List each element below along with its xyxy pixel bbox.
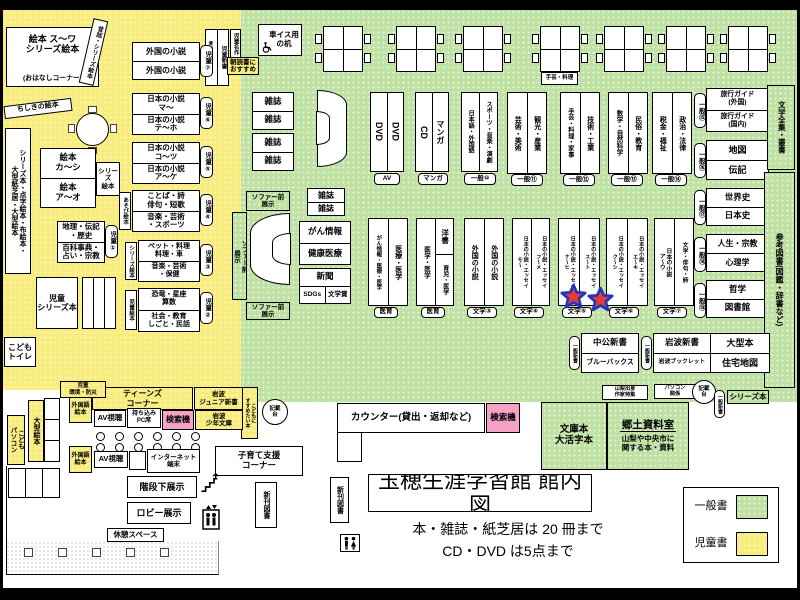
rest-space-seat <box>24 548 33 557</box>
magazine-label: 雑誌 <box>253 93 293 111</box>
newspaper-rack: 新聞 SDGs 文学賞 <box>299 268 351 304</box>
asadoku-recommend-box: 朝読書に おすすめ <box>227 57 259 75</box>
japanese-novels-ko-tsu: 日本の小説 コ〜ツ <box>133 143 199 163</box>
tag-av: AV <box>374 173 400 185</box>
legend-general-swatch <box>736 495 768 519</box>
reading-table <box>720 26 776 72</box>
sdgs-label: SDGs <box>300 287 325 304</box>
medicine-shelf: 医学・医学 <box>417 219 435 305</box>
bluebacks: ブルーバックス <box>582 353 638 373</box>
iwanami-shinsho: 岩波新書 <box>654 334 710 353</box>
large-books: 大型本 <box>711 334 769 353</box>
craft-cooking-note: 手芸・料理 <box>541 72 578 85</box>
rest-space-seat <box>160 548 169 557</box>
jnovels-essay-e-ki: 日本の小説・エッセイ エ〜キ <box>627 219 648 305</box>
children-toilet: こども トイレ <box>4 337 36 367</box>
geography-biography-history: 地理・伝記 ・歴史 <box>58 222 104 242</box>
paperback-largeprint-box: 文庫本 大活字本 <box>541 402 607 470</box>
wheelchair-desk-label: 車イス用 の机 <box>269 31 299 48</box>
tag-ippan-shinsho: 一般新書 <box>569 336 580 370</box>
shelf-medical-1: がん情報・医療・医学 医療・医学 <box>368 218 408 306</box>
iwanami-shonen-bunko: 岩波 少年文庫 <box>195 410 243 430</box>
curved-sofa-inner <box>272 233 291 265</box>
travel-guide-domestic: 旅行ガイド (国内) <box>707 110 768 132</box>
shelf-history: 世界史 日本史 <box>706 188 769 226</box>
shelf-craft-engineering: 手芸・料理・家事 技術・工業 <box>560 92 600 174</box>
shelf-chuko-shinsho: 中公新書 ブルーバックス <box>581 333 639 373</box>
ohanashi-corner-label: (おはなしコーナー) <box>23 75 82 83</box>
japanese-history: 日本史 <box>707 207 768 226</box>
chair-icon <box>68 124 75 133</box>
byod-pc-seat: 持ち込み PC席 <box>127 408 161 428</box>
medical-shelf: 医療・医学 <box>388 219 408 305</box>
picture-book-ka-shi: 絵本 カ〜シ <box>41 149 95 178</box>
library-floor-map: 絵本 ス〜ワ シリーズ絵本 (おはなしコーナー) 昔話・シリーズ絵本 ちしきの絵… <box>0 0 800 600</box>
tag-manga: マンガ <box>418 173 448 185</box>
tag-jido-2: 児童② <box>200 292 213 324</box>
children-pet-cooking-shelf: ペット・料理 料理・車 音楽・芸術 ・保健 <box>138 240 200 282</box>
math-natural-science: 数学・自然科学 <box>609 93 628 173</box>
shelf-dvd: DVD DVD <box>370 92 404 172</box>
children-dinosaur-society-shelf: 恐竜・星座 算数 社会・教育 しごと・民話 <box>138 288 200 332</box>
restroom-icon <box>342 536 358 551</box>
new-books-shelf: 新刊図書 <box>255 482 277 528</box>
cancer-info: がん情報 <box>300 222 350 243</box>
tourism-industry: 観光・産業 <box>527 93 547 173</box>
av-viewing-seat: AV視聴 <box>94 451 128 468</box>
encyclopedia-fortune-religion: 百科事典・ 占い・宗教 <box>58 242 104 263</box>
iwanami-booklet: 岩波ブックレット <box>654 353 710 373</box>
children-series-books: 児童 シリーズ本 <box>36 277 78 329</box>
elevator-icon <box>202 504 220 530</box>
yamanashi-authors-feature: 山梨出身 作家特集 <box>602 385 648 400</box>
craft-cooking-housework: 手芸・料理・家事 <box>561 93 580 173</box>
children-shelf-geography: 地理・伝記 ・歴史 百科事典・ 占い・宗教 <box>57 221 105 263</box>
curved-sofa-inner <box>316 111 330 145</box>
tag-iiku: 医育 <box>374 307 398 318</box>
reading-table <box>315 26 371 72</box>
shelf-jnovels-a-u: 日本の小説 ア〜ウ 文学・俳句・詩 <box>654 218 694 306</box>
reading-table <box>658 26 714 72</box>
art-fineart: 芸術・美術 <box>508 93 527 173</box>
series-ehon-label: シリーズ絵本 <box>125 242 137 280</box>
shelf-iwanami-shinsho: 岩波新書 岩波ブックレット <box>653 333 711 373</box>
newspaper-label: 新聞 <box>300 269 350 286</box>
big-picturebooks: 大型絵本 <box>28 400 44 462</box>
words-poems-haiku: ことば・詩 俳句・短歌 <box>133 191 199 211</box>
legend-general-label: 一般書 <box>695 500 728 513</box>
av-viewing-seat: AV視聴 <box>94 410 126 427</box>
picture-books-range-label: 絵本 ス〜ワ シリーズ絵本 <box>26 34 80 55</box>
tag-jido-5: 児童⑤ <box>200 146 213 178</box>
psychology: 心理学 <box>707 253 768 272</box>
chair-icon <box>110 124 117 133</box>
stairs-icon <box>199 471 219 493</box>
rest-space-label: 休憩スペース <box>107 528 164 542</box>
chair-icon <box>88 106 97 113</box>
tag-ippan-19: 一般⑲ <box>694 283 706 318</box>
tag-jido-3: 児童③ <box>200 244 213 276</box>
tag-ippan-10: 一般⑩ <box>464 173 496 185</box>
jnovels-essay-mo: 日本の小説・エッセイ モ〜 <box>513 219 531 305</box>
children-environment-disaster: 児童 環境・防災 <box>60 381 106 398</box>
tag-jido-7: 児童⑦ <box>200 45 213 77</box>
shelf-jnovels-mo-me: 日本の小説・エッセイ モ〜 日本の小説・エッセイ フ〜メ <box>512 218 550 306</box>
japanese-novels-a-ke: 日本の小説 ア〜ケ <box>133 163 199 184</box>
children-meisaku-shelf: 児童名作 <box>230 29 241 58</box>
iwanami-junior-shinsho: 岩波 ジュニア新書 <box>194 387 243 410</box>
reading-table <box>596 26 652 72</box>
dvd-label: DVD <box>371 93 387 171</box>
literature-prize-label: 文学賞 <box>325 287 351 304</box>
folklore-education: 民俗・教育 <box>628 93 648 173</box>
health-medical: 健康医療 <box>300 243 350 265</box>
shelf-medical-2: 医学・医学 洋書 育児・医学 <box>416 218 454 306</box>
tag-iiku: 医育 <box>421 307 445 318</box>
children-japanese-novels-a-tsu: 日本の小説 コ〜ツ 日本の小説 ア〜ケ <box>132 142 200 184</box>
pet-cooking-car: ペット・料理 料理・車 <box>139 241 199 261</box>
shelf-math-folklore: 数学・自然科学 民俗・教育 <box>608 92 648 174</box>
round-table <box>76 113 109 146</box>
book-limit: 本・雑誌・紙芝居は 20 冊まで <box>412 518 603 540</box>
writing-stand: 記載 台 <box>262 399 288 425</box>
lending-limit-note: 本・雑誌・紙芝居は 20 冊まで CD・DVD は5点まで <box>368 514 648 566</box>
reading-table <box>455 26 511 72</box>
children-words-poems-shelf: ことば・詩 俳句・短歌 音楽・芸術 ・スポーツ <box>132 190 200 232</box>
wall-line <box>6 466 7 574</box>
politics-law: 政治・法律 <box>672 93 692 173</box>
kids-computer: こども パソコン <box>7 415 25 465</box>
tag-bungaku-4: 文学④ <box>514 307 544 318</box>
cancer-health-info: がん情報 健康医療 <box>299 221 351 265</box>
tag-ippan-12: 一般⑫ <box>563 174 595 186</box>
manga-label: マンガ <box>432 93 449 171</box>
tag-ippan-13: 一般⑬ <box>611 174 643 186</box>
library-science: 図書館 <box>707 299 768 318</box>
dinosaur-stars-math: 恐竜・星座 算数 <box>139 289 199 310</box>
technology-industry: 技術・工業 <box>580 93 600 173</box>
cd-label: CD <box>416 93 432 171</box>
magazine-label: 雑誌 <box>253 134 293 152</box>
childcare-medical: 育児・医学 <box>436 254 454 305</box>
legend: 一般書 児童書 <box>683 487 779 563</box>
magazine-label: 雑誌 <box>253 111 293 130</box>
letterbox-top <box>0 0 800 10</box>
star-marker-icon <box>560 283 587 310</box>
lobby-display: ロビー展示 <box>127 502 191 524</box>
series-braille-bigbook-shelf: シリーズ本・点字絵本・布絵本・ 大型紙芝居・大型絵本 <box>5 128 31 274</box>
tax-welfare: 税金・福祉 <box>653 93 672 173</box>
picture-book-shelf-ka-a: 絵本 カ〜シ 絵本 ア〜オ <box>40 148 96 208</box>
internet-terminal: インターネット 端末 <box>147 449 200 473</box>
rest-space-floor <box>6 541 219 575</box>
reading-table <box>532 26 588 72</box>
search-terminal: 検索機 <box>486 403 520 433</box>
shelf-maps-biography: 地図 伝記 <box>706 140 769 180</box>
tag-bungaku-7: 文学⑦ <box>657 307 687 318</box>
foreign-language-books: 洋書 <box>440 219 449 254</box>
teens-corner: ティーンズ コーナー <box>92 387 193 410</box>
children-japanese-novels-ma-ho: 日本の小説 マ〜 日本の小説 テ〜ホ <box>132 93 200 135</box>
tag-bungaku-3: 文学③ <box>467 307 497 318</box>
series-ehon-box: シリーズ 絵本 <box>96 162 120 196</box>
magazine-label: 雑誌 <box>308 202 344 216</box>
tag-ippan-15: 一般⑮ <box>694 93 706 128</box>
maps: 地図 <box>707 141 768 160</box>
restroom-box <box>340 534 360 552</box>
children-foreign-novels-shelf: 外国の小説 外国の小説 <box>132 42 200 80</box>
dvd-label: DVD <box>387 93 404 171</box>
under-stairs-display: 階段下展示 <box>127 476 197 498</box>
letterbox-bottom <box>0 588 800 600</box>
sofa-front-display: ソファー前 展示 <box>232 212 247 300</box>
music-art-health: 音楽・芸術 ・保健 <box>139 261 199 282</box>
av-limit: CD・DVD は5点まで <box>442 540 573 562</box>
pc-related-books: パソコン 関係 <box>654 384 696 399</box>
shelf-life-psychology: 人生・宗教 心理学 <box>706 234 769 272</box>
legend-children-label: 児童書 <box>695 537 728 550</box>
tag-ippan-shinsho: 一般新書 <box>641 336 652 370</box>
service-counter-leg <box>337 432 362 462</box>
life-religion: 人生・宗教 <box>707 235 768 253</box>
foreign-novels: 外国の小説 <box>133 43 199 61</box>
local-history-desc: 山梨や中央市に 関する本・資料 <box>622 435 675 452</box>
housing-map: 住宅地図 <box>711 353 769 373</box>
childcare-support-corner: 子育て支援 コーナー <box>215 446 303 476</box>
literature-haiku-poems: 文学・俳句・詩 <box>674 219 694 305</box>
magazine-rack: 雑誌 雑誌 <box>252 133 294 171</box>
writing-stand: 記載 台 <box>692 380 716 404</box>
biography: 伝記 <box>707 160 768 180</box>
map-title: 玉穂生涯学習館 館内図 <box>368 474 592 512</box>
society-education-folktales: 社会・教育 しごと・民話 <box>139 310 199 332</box>
letterbox-left <box>0 0 3 600</box>
seat-row <box>96 432 210 441</box>
chuko-shinsho: 中公新書 <box>582 334 638 353</box>
tag-ippan-shinsho: 一般新書 <box>714 390 725 418</box>
world-history: 世界史 <box>707 189 768 207</box>
magazine-rack: 雑誌 雑誌 <box>252 92 294 130</box>
recommended-for-kids: こどもに すすめたい本 <box>241 387 258 439</box>
magazine-label: 雑誌 <box>253 152 293 171</box>
foreign-language-picturebooks: 外国語 絵本 <box>69 396 92 423</box>
asobi-ehon-label: あそび絵本 <box>119 192 131 230</box>
rest-space-seat <box>126 548 135 557</box>
wheelchair-desk: 車イス用 の机 <box>258 24 302 56</box>
local-history-room: 郷土資料室 山梨や中央市に 関する本・資料 <box>607 402 689 470</box>
service-counter: カウンター(貸出・返却など) <box>337 403 485 433</box>
sofa-front-display: ソファー前 展示 <box>246 302 290 320</box>
japanese-novels-ma: 日本の小説 マ〜 <box>133 94 199 114</box>
jnovels-a-u: 日本の小説 ア〜ウ <box>655 219 674 305</box>
picture-book-a-o: 絵本 ア〜オ <box>41 178 95 208</box>
reading-table <box>388 26 444 72</box>
shelf-art-tourism: 芸術・美術 観光・産業 <box>507 92 547 174</box>
shelf-language-performing: 日本語・外国語 スポーツ・音楽・演劇 <box>461 92 498 172</box>
tag-ippan-16: 一般⑯ <box>694 143 706 178</box>
japanese-foreign-language: 日本語・外国語 <box>462 93 479 171</box>
foreign-language-picturebooks: 外国語 絵本 <box>69 446 92 473</box>
japanese-novels-te-ho: 日本の小説 テ〜ホ <box>133 114 199 135</box>
shelf-philosophy-library: 哲学 図書館 <box>706 280 769 318</box>
jido-ehon-label: 児童絵本 <box>125 290 137 330</box>
wheelchair-icon <box>261 41 273 53</box>
children-shelf-unit <box>82 277 116 329</box>
tag-jido-6: 児童⑥ <box>200 97 213 129</box>
philosophy: 哲学 <box>707 281 768 299</box>
foreign-novels: 外国の小説 <box>133 61 199 80</box>
music-art-sports: 音楽・芸術 ・スポーツ <box>133 211 199 232</box>
tag-jido-4: 児童④ <box>200 194 213 226</box>
tag-jido-1: 児童① <box>105 225 118 258</box>
cancer-medical-shelf: がん情報・医療・医学 <box>369 219 388 305</box>
shelf-tax-politics: 税金・福祉 政治・法律 <box>652 92 692 174</box>
big-picturebooks-shelf <box>44 398 60 462</box>
shelf-cd-manga: CD マンガ <box>415 92 449 172</box>
search-terminal: 検索機 <box>162 410 194 430</box>
unlabeled-desk <box>129 451 146 470</box>
shelf-largebooks-housemap: 大型本 住宅地図 <box>710 333 770 373</box>
rest-space-seat <box>92 548 101 557</box>
shelf-travel-guides: 旅行ガイド (外国) 旅行ガイド (国内) <box>706 88 769 132</box>
magazine-label: 雑誌 <box>308 189 344 202</box>
foreign-novels: 外国の小説 <box>484 219 504 305</box>
tag-ippan-11: 一般⑪ <box>511 174 543 186</box>
foreign-novels: 外国の小説 <box>465 219 484 305</box>
bench <box>8 468 60 498</box>
new-books-shelf: 新刊図書 <box>330 477 349 523</box>
local-history-title: 郷土資料室 <box>620 419 677 432</box>
magazine-rack: 雑誌 雑誌 <box>307 188 345 216</box>
jnovels-essay-fu-me: 日本の小説・エッセイ フ〜メ <box>531 219 550 305</box>
legend-children-swatch <box>736 532 768 556</box>
shelf-foreign-novels: 外国の小説 外国の小説 <box>464 218 504 306</box>
travel-guide-foreign: 旅行ガイド (外国) <box>707 89 768 110</box>
rest-space-seat <box>58 548 67 557</box>
literature-complete-works: 文学全集・叢書 <box>767 85 795 170</box>
star-marker-icon <box>587 286 614 313</box>
tag-ippan-17: 一般⑰ <box>694 190 706 225</box>
sofa-front-display: ソファー前 展示 <box>246 191 290 211</box>
tag-ippan-18: 一般⑱ <box>694 237 706 272</box>
sports-music-theater: スポーツ・音楽・演劇 <box>479 93 497 171</box>
series-books-box: シリーズ本 <box>727 390 769 404</box>
tag-ippan-14: 一般⑭ <box>655 174 687 186</box>
